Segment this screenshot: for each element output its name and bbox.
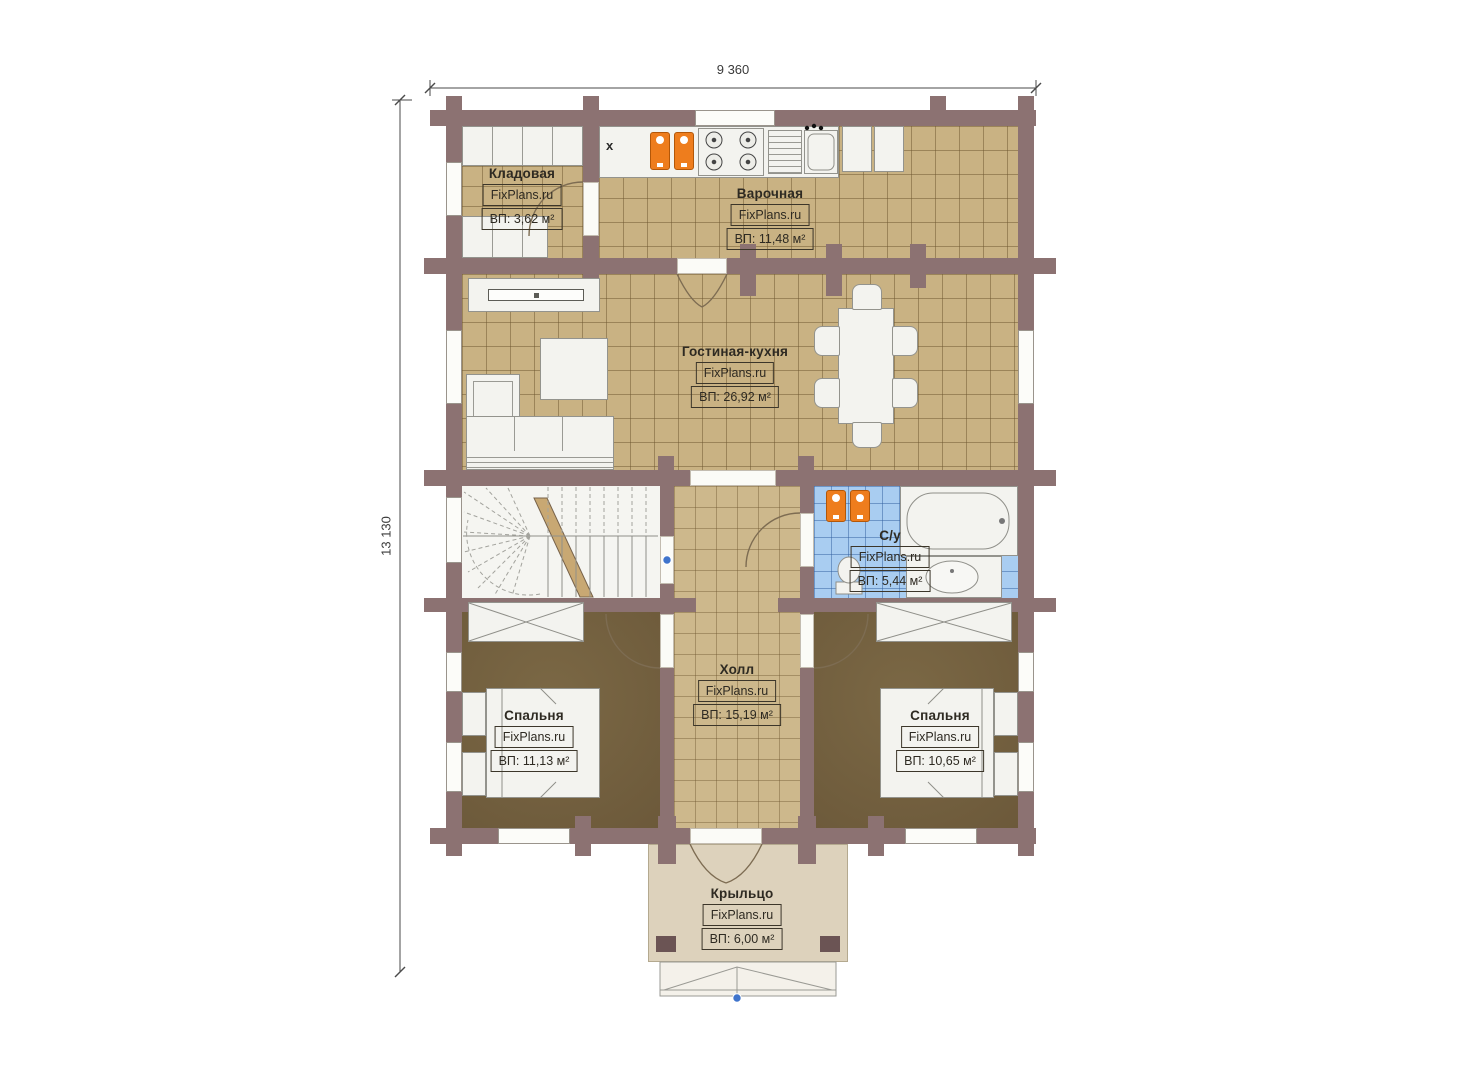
- door-storage: [583, 182, 599, 236]
- nightstand: [462, 752, 486, 796]
- log-stub: [868, 816, 884, 856]
- log-stub: [658, 456, 674, 486]
- log-stub: [930, 96, 946, 126]
- water-heater-icon: [826, 490, 846, 522]
- room-area: ВП: 10,65 м²: [896, 750, 984, 772]
- room-brand: FixPlans.ru: [703, 904, 782, 926]
- log-stub: [424, 258, 446, 274]
- room-area: ВП: 5,44 м²: [850, 570, 931, 592]
- log-stub: [778, 598, 800, 612]
- room-label-storage: Кладовая FixPlans.ru ВП: 3,62 м²: [482, 166, 563, 230]
- dining-chair: [892, 326, 918, 356]
- wall-hall-left-3: [660, 668, 674, 828]
- wall-hall-right-3: [800, 668, 814, 828]
- room-label-porch: Крыльцо FixPlans.ru ВП: 6,00 м²: [702, 886, 783, 950]
- door-bedroom-right: [800, 614, 814, 668]
- room-area: ВП: 15,19 м²: [693, 704, 781, 726]
- dimension-depth: 13 130: [379, 516, 394, 556]
- room-brand: FixPlans.ru: [731, 204, 810, 226]
- log-stub: [583, 96, 599, 126]
- room-label-living: Гостиная-кухня FixPlans.ru ВП: 26,92 м²: [682, 344, 788, 408]
- room-name: Кладовая: [482, 166, 563, 182]
- wall-living-lower-b: [776, 470, 1034, 486]
- door-bathroom: [800, 513, 814, 567]
- room-brand: FixPlans.ru: [696, 362, 775, 384]
- room-name: Холл: [693, 662, 781, 678]
- room-area: ВП: 26,92 м²: [691, 386, 779, 408]
- wall-living-lower-a: [446, 470, 690, 486]
- wall-hall-right-1: [800, 486, 814, 513]
- room-brand: FixPlans.ru: [483, 184, 562, 206]
- water-heater-icon: [850, 490, 870, 522]
- vent-mark: х: [606, 138, 613, 153]
- room-name: Гостиная-кухня: [682, 344, 788, 360]
- window-bedroom-left-south: [498, 828, 570, 844]
- window-storage: [446, 162, 462, 216]
- wall-kitchen-living-b: [727, 258, 1034, 274]
- log-stub: [575, 816, 591, 856]
- door-entrance: [690, 828, 762, 844]
- window-bedroom-right-south: [905, 828, 977, 844]
- room-label-hall: Холл FixPlans.ru ВП: 15,19 м²: [693, 662, 781, 726]
- log-stub: [1034, 258, 1056, 274]
- window-bedroom-right-1: [1018, 652, 1034, 692]
- window-living-left: [446, 330, 462, 404]
- wall-hall-left-2: [660, 584, 674, 614]
- door-bedroom-left: [660, 614, 674, 668]
- room-label-bathroom: С/у FixPlans.ru ВП: 5,44 м²: [850, 528, 931, 592]
- room-label-bedroom-right: Спальня FixPlans.ru ВП: 10,65 м²: [896, 708, 984, 772]
- sofa-cushions: [467, 417, 613, 451]
- room-name: Крыльцо: [702, 886, 783, 902]
- wall-kitchen-living-a: [446, 258, 677, 274]
- nightstand: [994, 692, 1018, 736]
- water-heater-icon: [650, 132, 670, 170]
- kitchen-cabinet: [842, 126, 872, 172]
- room-area: ВП: 11,13 м²: [491, 750, 578, 772]
- room-brand: FixPlans.ru: [851, 546, 930, 568]
- log-stub: [798, 816, 816, 864]
- room-name: С/у: [850, 528, 931, 544]
- nightstand: [462, 692, 486, 736]
- coffee-table: [540, 338, 608, 400]
- floor-hall: [674, 486, 800, 828]
- dining-chair: [852, 284, 882, 310]
- window-bedroom-left-2: [446, 742, 462, 792]
- dining-chair: [852, 422, 882, 448]
- door-kitchen-living: [677, 258, 727, 274]
- dimension-width: 9 360: [717, 62, 750, 77]
- dining-chair: [814, 326, 840, 356]
- log-stub: [740, 244, 756, 296]
- room-label-bedroom-left: Спальня FixPlans.ru ВП: 11,13 м²: [491, 708, 578, 772]
- kitchen-cabinet: [874, 126, 904, 172]
- sink-drainer: [768, 130, 802, 174]
- opening-living-hall: [690, 470, 776, 486]
- window-kitchen: [695, 110, 775, 126]
- water-heater-icon: [674, 132, 694, 170]
- window-stairs: [446, 497, 462, 563]
- log-stub: [424, 470, 446, 486]
- wardrobe-left: [468, 602, 584, 642]
- sofa: [466, 416, 614, 470]
- porch-steps: [660, 962, 836, 996]
- log-stub: [674, 598, 696, 612]
- dining-chair: [814, 378, 840, 408]
- sink-basin: [804, 130, 838, 174]
- porch-post: [820, 936, 840, 952]
- nightstand: [994, 752, 1018, 796]
- log-stub: [1034, 470, 1056, 486]
- room-area: ВП: 11,48 м²: [727, 228, 814, 250]
- room-name: Спальня: [491, 708, 578, 724]
- room-brand: FixPlans.ru: [901, 726, 980, 748]
- wall-hall-left-1: [660, 486, 674, 536]
- log-stub: [826, 244, 842, 296]
- opening-stairs: [660, 536, 674, 584]
- sofa-backrest: [467, 453, 613, 469]
- floor-stairs: [462, 486, 660, 598]
- dining-table: [838, 308, 894, 424]
- storage-shelf-top: [462, 126, 583, 166]
- porch-post: [656, 936, 676, 952]
- floor-plan-canvas: х: [0, 0, 1474, 1080]
- log-stub: [798, 456, 814, 486]
- log-stub: [1034, 598, 1056, 612]
- log-stub: [424, 598, 446, 612]
- log-stub: [910, 244, 926, 288]
- room-brand: FixPlans.ru: [698, 680, 777, 702]
- room-area: ВП: 3,62 м²: [482, 208, 563, 230]
- tv: [488, 289, 584, 301]
- stove: [698, 128, 764, 176]
- window-bedroom-left-1: [446, 652, 462, 692]
- window-bedroom-right-2: [1018, 742, 1034, 792]
- window-living-right: [1018, 330, 1034, 404]
- room-name: Варочная: [727, 186, 814, 202]
- log-stub: [658, 816, 676, 864]
- room-name: Спальня: [896, 708, 984, 724]
- room-brand: FixPlans.ru: [495, 726, 574, 748]
- dining-chair: [892, 378, 918, 408]
- room-area: ВП: 6,00 м²: [702, 928, 783, 950]
- wardrobe-right: [876, 602, 1012, 642]
- marker-dot: [733, 994, 741, 1002]
- room-label-cooking: Варочная FixPlans.ru ВП: 11,48 м²: [727, 186, 814, 250]
- wall-storage-a: [583, 126, 599, 182]
